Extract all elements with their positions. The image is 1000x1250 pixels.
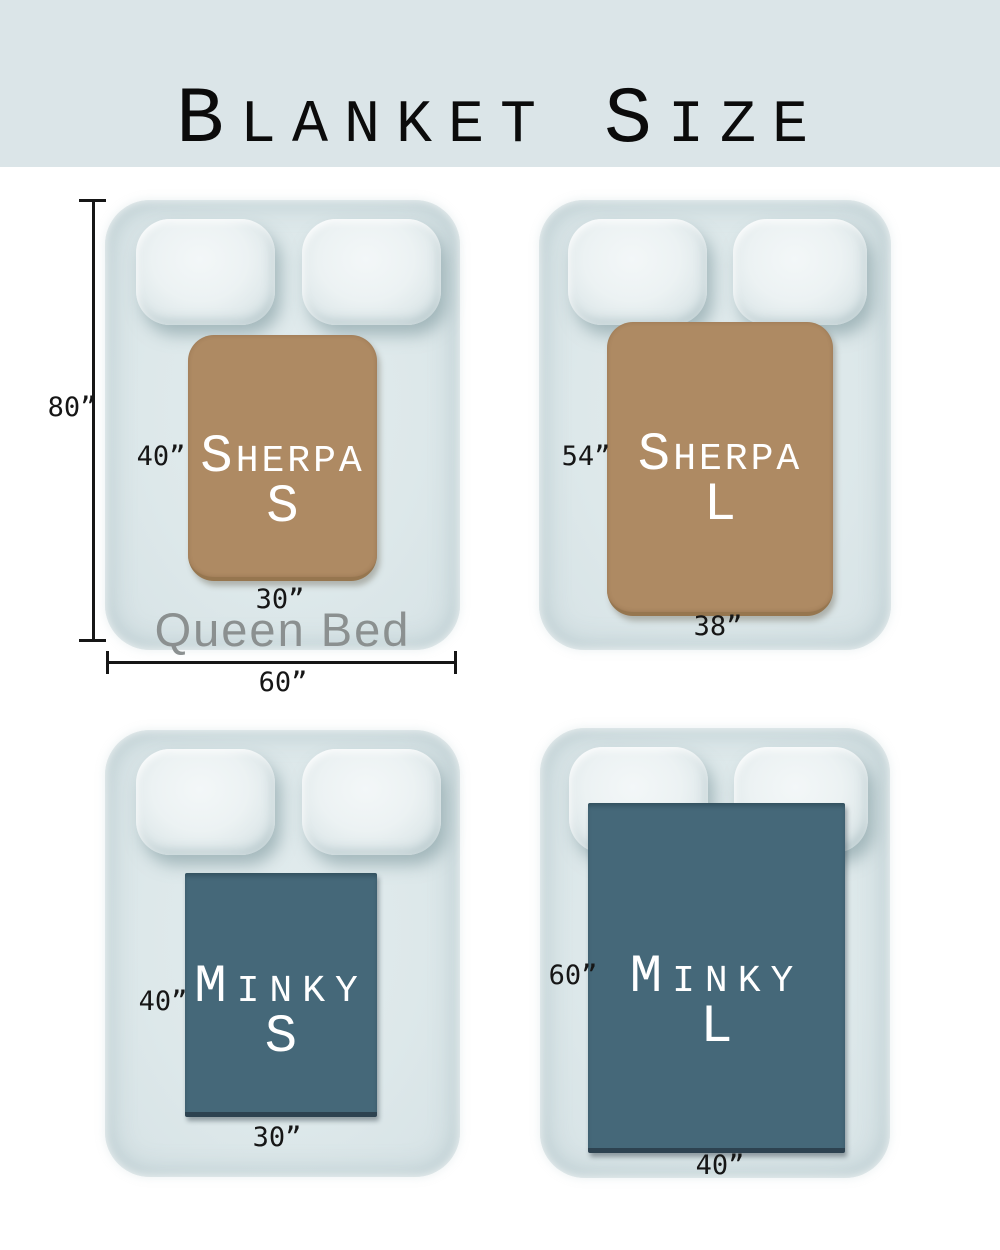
blanket-size-letter: L bbox=[588, 1003, 845, 1053]
pillow-left bbox=[136, 219, 275, 325]
blanket-name: SHERPA bbox=[607, 431, 833, 481]
bed-sherpa-s: SHERPA S bbox=[105, 200, 460, 650]
blanket-height-label-sherpa-l: 54” bbox=[551, 443, 621, 471]
bed-height-label: 80” bbox=[37, 394, 107, 422]
title-size-initial: S bbox=[604, 75, 668, 166]
blanket-label: MINKY L bbox=[588, 953, 845, 1053]
blanket-name: MINKY bbox=[185, 963, 377, 1013]
blanket-width-label-minky-s: 30” bbox=[242, 1124, 312, 1152]
blanket-label: MINKY S bbox=[185, 963, 377, 1063]
blanket-width-label-sherpa-l: 38” bbox=[683, 613, 753, 641]
title-blanket-initial: B bbox=[176, 75, 240, 166]
blanket-minky-s: MINKY S bbox=[185, 873, 377, 1117]
bed-width-label: 60” bbox=[248, 669, 318, 697]
title-size-rest: IZE bbox=[668, 92, 824, 160]
blanket-width-label-minky-l: 40” bbox=[685, 1152, 755, 1180]
blanket-size-chart: BLANKETSIZE 80” 60” SHERPA S 40” 30” Que… bbox=[0, 0, 1000, 1250]
blanket-height-label-sherpa-s: 40” bbox=[126, 443, 196, 471]
pillow-right bbox=[733, 219, 867, 325]
title-blanket-rest: LANKET bbox=[240, 92, 552, 160]
blanket-sherpa-s: SHERPA S bbox=[188, 335, 377, 581]
height-dimension-cap-bottom bbox=[79, 639, 106, 642]
pillow-left bbox=[568, 219, 707, 325]
pillow-right bbox=[302, 749, 441, 855]
bed-sherpa-l: SHERPA L bbox=[539, 200, 891, 650]
width-dimension-line bbox=[107, 661, 457, 664]
blanket-name: MINKY bbox=[588, 953, 845, 1003]
header-banner: BLANKETSIZE bbox=[0, 0, 1000, 167]
blanket-size-letter: S bbox=[185, 1013, 377, 1063]
page-title: BLANKETSIZE bbox=[0, 81, 1000, 161]
bed-minky-l: MINKY L bbox=[540, 728, 890, 1178]
blanket-size-letter: S bbox=[188, 483, 377, 533]
blanket-size-letter: L bbox=[607, 481, 833, 531]
blanket-label: SHERPA S bbox=[188, 433, 377, 533]
pillow-left bbox=[136, 749, 275, 855]
blanket-sherpa-l: SHERPA L bbox=[607, 322, 833, 616]
blanket-minky-l: MINKY L bbox=[588, 803, 845, 1153]
queen-bed-name: Queen Bed bbox=[105, 602, 460, 657]
bed-minky-s: MINKY S bbox=[105, 730, 460, 1177]
blanket-height-label-minky-l: 60” bbox=[538, 962, 608, 990]
pillow-right bbox=[302, 219, 441, 325]
blanket-name: SHERPA bbox=[188, 433, 377, 483]
blanket-label: SHERPA L bbox=[607, 431, 833, 531]
blanket-height-label-minky-s: 40” bbox=[128, 988, 198, 1016]
